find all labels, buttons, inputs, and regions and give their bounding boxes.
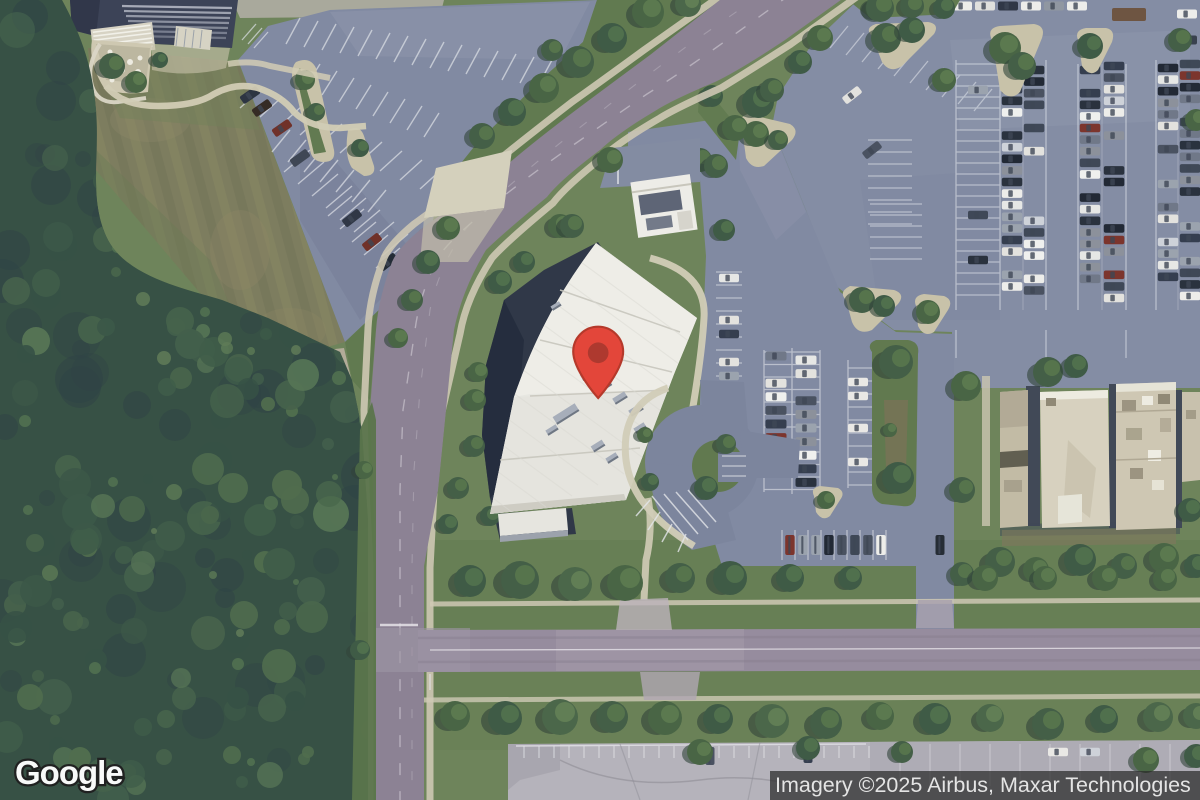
svg-text:Google: Google <box>15 754 123 791</box>
svg-text:Imagery ©2025 Airbus, Maxar Te: Imagery ©2025 Airbus, Maxar Technologies <box>775 773 1191 797</box>
